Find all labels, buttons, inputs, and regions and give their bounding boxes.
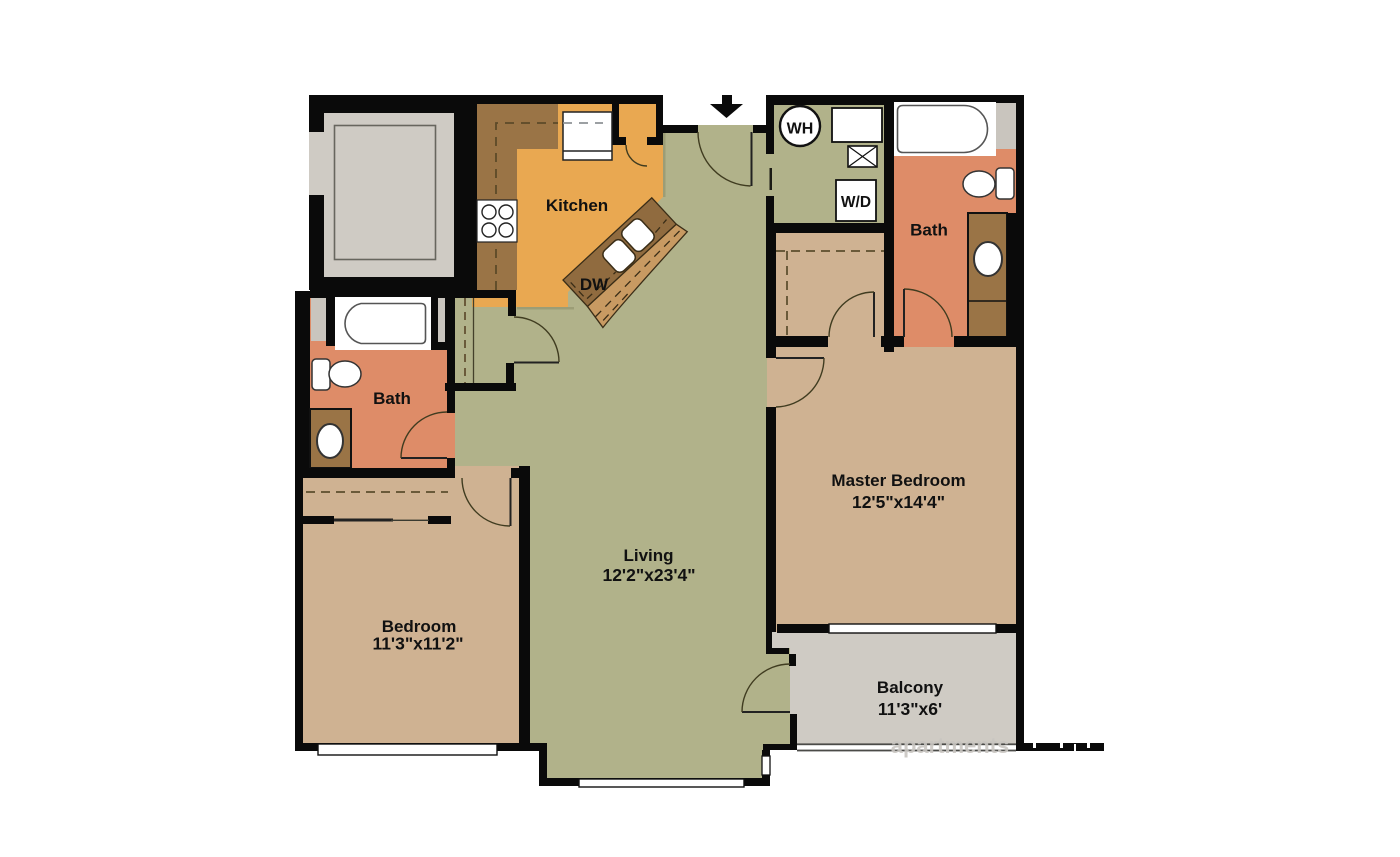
svg-text:11'3"x11'2": 11'3"x11'2"	[372, 634, 463, 654]
svg-text:Living: Living	[623, 546, 673, 565]
svg-text:WH: WH	[787, 121, 814, 138]
svg-text:Bath: Bath	[373, 389, 411, 408]
svg-text:11'3"x6': 11'3"x6'	[878, 699, 942, 719]
svg-text:W/D: W/D	[841, 194, 871, 211]
svg-text:apartments: apartments	[891, 733, 1010, 758]
svg-text:12'5"x14'4": 12'5"x14'4"	[852, 492, 945, 512]
svg-text:DW: DW	[580, 275, 609, 294]
svg-text:12'2"x23'4": 12'2"x23'4"	[602, 565, 695, 585]
svg-text:Bath: Bath	[910, 221, 948, 240]
svg-text:Kitchen: Kitchen	[546, 196, 608, 215]
svg-text:Balcony: Balcony	[877, 678, 944, 697]
svg-text:Master Bedroom: Master Bedroom	[831, 471, 965, 490]
